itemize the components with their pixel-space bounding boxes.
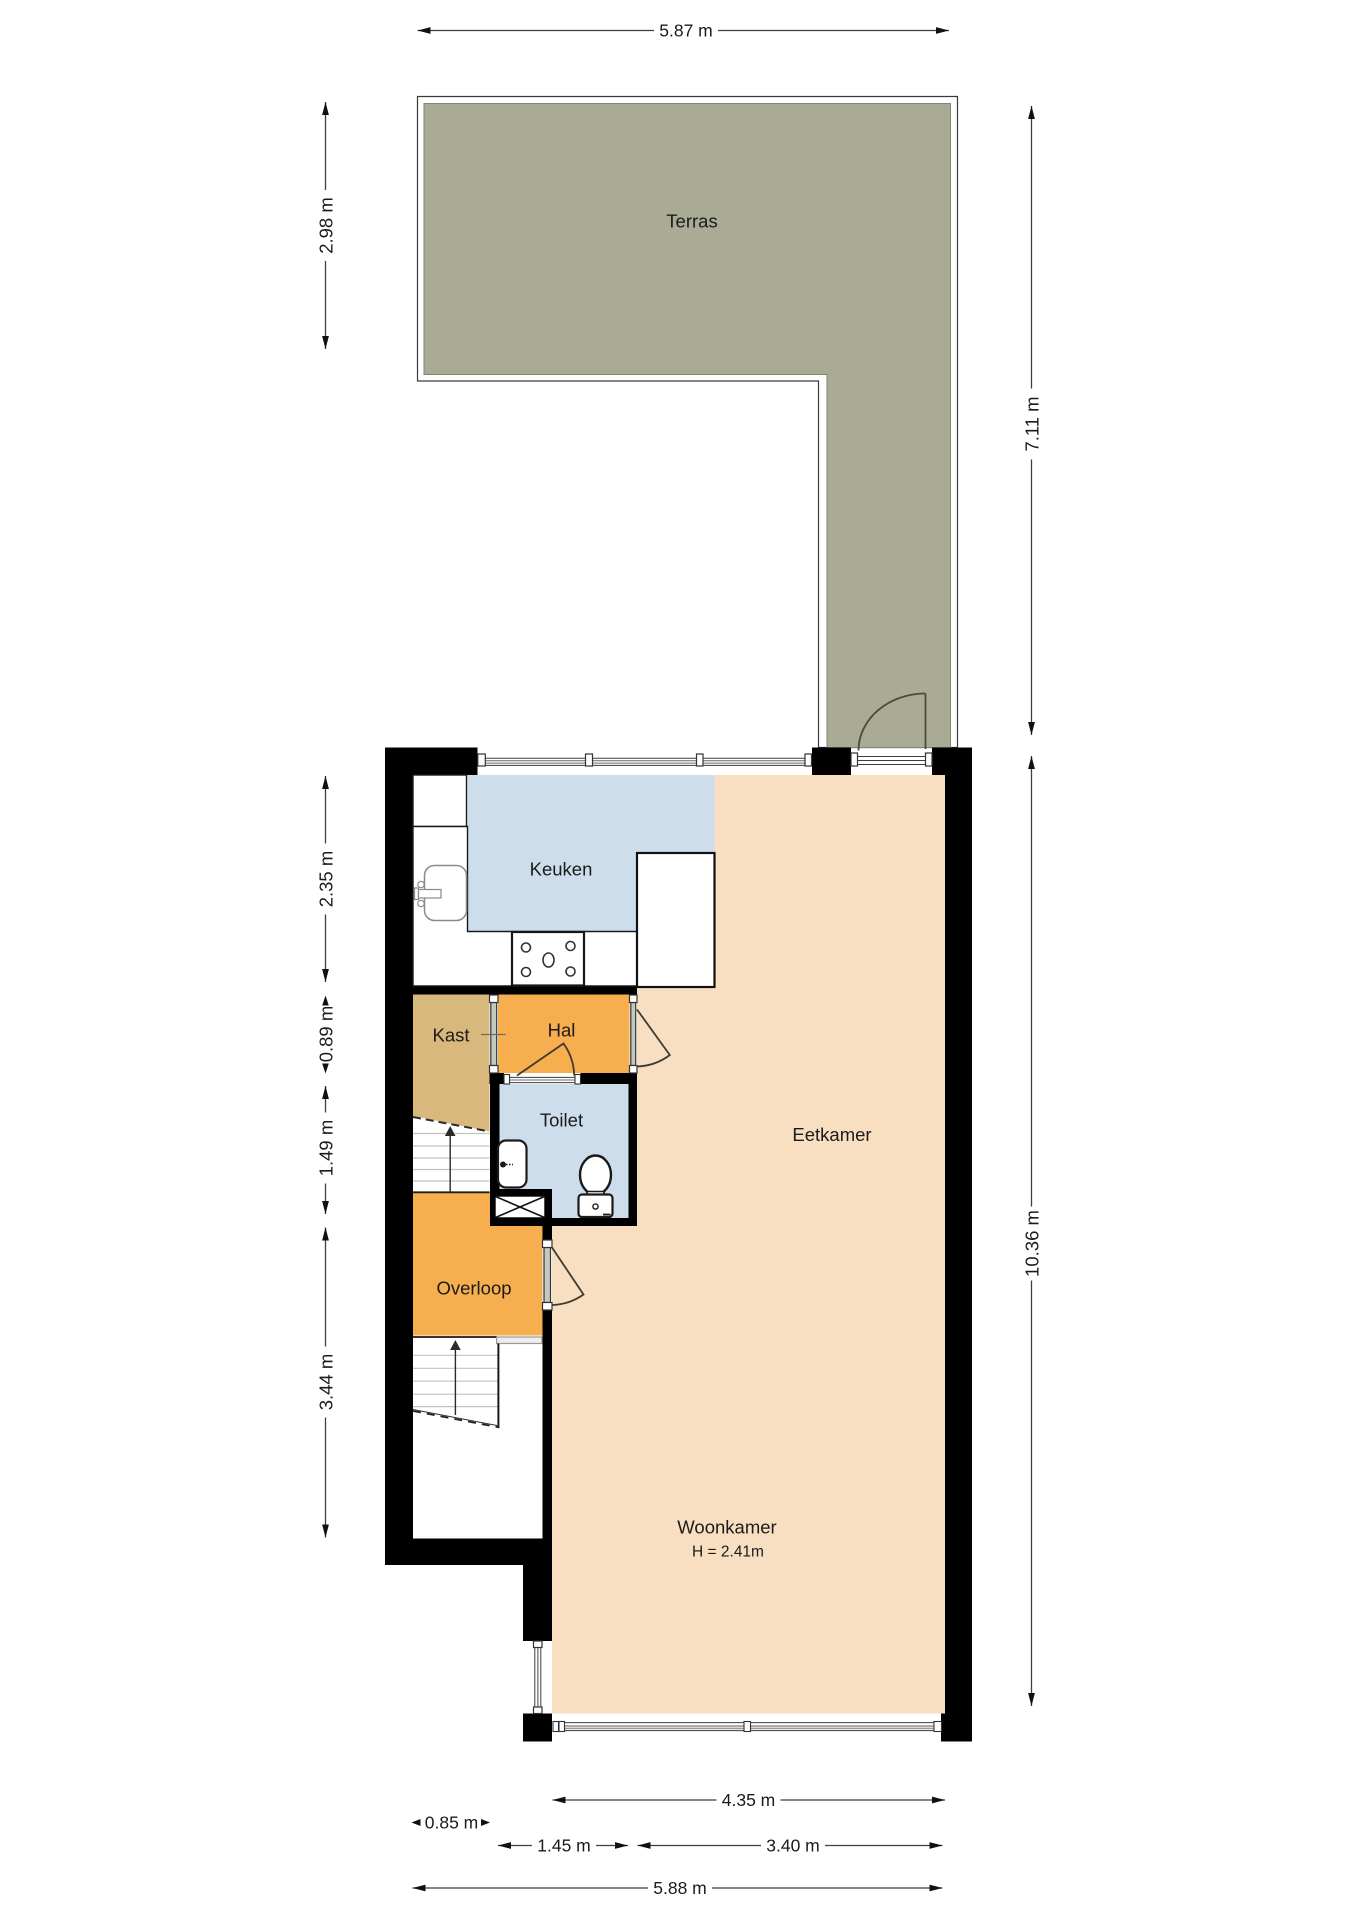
svg-text:Eetkamer: Eetkamer [792, 1124, 871, 1145]
svg-text:5.88 m: 5.88 m [653, 1878, 707, 1898]
svg-text:0.89 m: 0.89 m [316, 1006, 337, 1063]
svg-text:Terras: Terras [666, 211, 717, 232]
svg-text:2.35 m: 2.35 m [316, 851, 337, 908]
svg-text:5.87 m: 5.87 m [659, 21, 713, 41]
svg-text:1.49 m: 1.49 m [316, 1120, 337, 1177]
svg-text:Toilet: Toilet [540, 1110, 583, 1131]
svg-text:Woonkamer: Woonkamer [677, 1517, 776, 1538]
svg-text:Hal: Hal [548, 1020, 576, 1041]
svg-text:Keuken: Keuken [530, 859, 593, 880]
svg-text:3.40 m: 3.40 m [766, 1836, 820, 1856]
svg-text:2.98 m: 2.98 m [316, 197, 337, 254]
svg-text:0.85 m: 0.85 m [425, 1813, 479, 1833]
svg-text:Overloop: Overloop [436, 1278, 511, 1299]
svg-text:4.35 m: 4.35 m [722, 1790, 776, 1810]
svg-text:10.36 m: 10.36 m [1022, 1210, 1043, 1277]
svg-text:1.45 m: 1.45 m [537, 1836, 591, 1856]
svg-text:3.44 m: 3.44 m [316, 1354, 337, 1411]
svg-text:H = 2.41m: H = 2.41m [692, 1544, 764, 1561]
svg-text:7.11 m: 7.11 m [1022, 396, 1043, 451]
svg-text:Kast: Kast [432, 1025, 469, 1046]
